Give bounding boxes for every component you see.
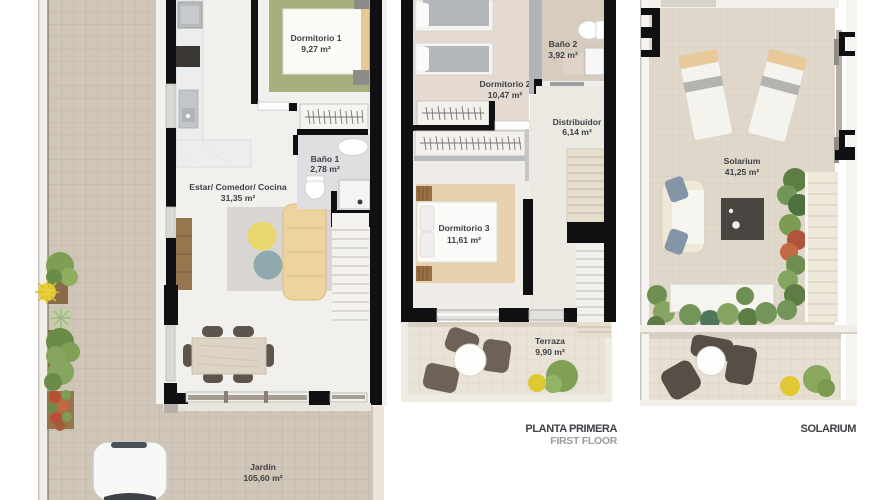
svg-text:SOLARIUM: SOLARIUM <box>801 423 857 435</box>
svg-text:Solarium: Solarium <box>724 156 761 166</box>
svg-text:Baño 2: Baño 2 <box>549 39 578 49</box>
svg-text:Estar/ Comedor/ Cocina: Estar/ Comedor/ Cocina <box>189 182 287 192</box>
svg-text:Dormitorio 1: Dormitorio 1 <box>290 33 341 43</box>
svg-text:Jardín: Jardín <box>250 462 276 472</box>
svg-text:9,90 m²: 9,90 m² <box>535 347 565 357</box>
svg-text:2,78 m²: 2,78 m² <box>310 164 340 174</box>
svg-text:Dormitorio 3: Dormitorio 3 <box>438 223 489 233</box>
svg-text:3,92 m²: 3,92 m² <box>548 50 578 60</box>
svg-text:11,61 m²: 11,61 m² <box>447 235 481 245</box>
svg-text:PLANTA PRIMERA: PLANTA PRIMERA <box>525 423 617 435</box>
svg-text:Baño 1: Baño 1 <box>311 154 340 164</box>
svg-text:Distribuidor: Distribuidor <box>553 117 602 127</box>
svg-text:6,14 m²: 6,14 m² <box>562 127 592 137</box>
svg-text:9,27 m²: 9,27 m² <box>301 44 331 54</box>
svg-text:31,35 m²: 31,35 m² <box>221 193 256 203</box>
svg-text:41,25 m²: 41,25 m² <box>725 167 760 177</box>
svg-text:Terraza: Terraza <box>535 336 565 346</box>
svg-text:FIRST FLOOR: FIRST FLOOR <box>550 435 617 447</box>
svg-text:10,47 m²: 10,47 m² <box>488 90 523 100</box>
svg-text:Dormitorio 2: Dormitorio 2 <box>479 79 530 89</box>
svg-text:105,60 m²: 105,60 m² <box>243 473 282 483</box>
